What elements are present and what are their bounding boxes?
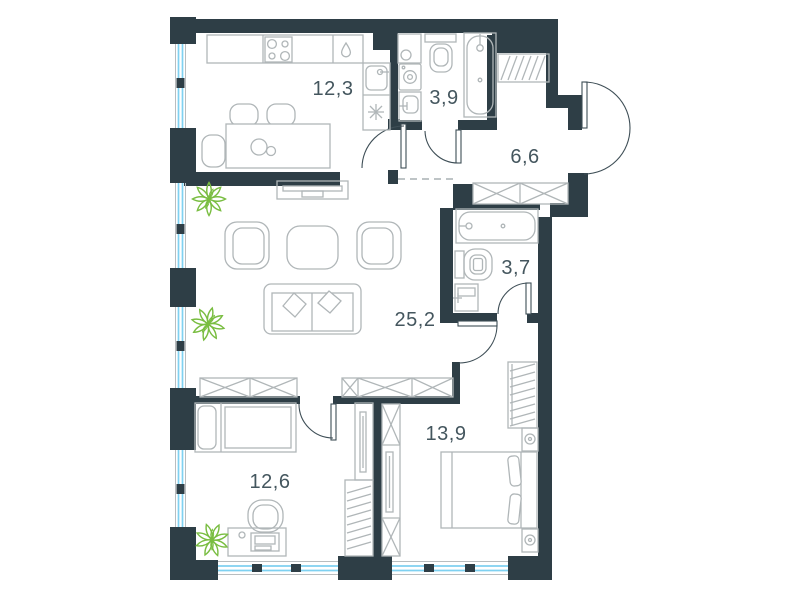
room-area-label-kitchen: 12,3 (313, 78, 354, 100)
entrance-door (582, 82, 630, 174)
double-bed (441, 452, 537, 528)
pillow (283, 293, 306, 317)
floor-plan-canvas: 12,3 3,9 6,6 3,7 25,2 12,6 13,9 (0, 0, 800, 600)
hanger-wardrobe-left-bedroom (345, 480, 373, 556)
plant-icon (188, 304, 228, 344)
kitchen-furniture (202, 35, 390, 168)
nightstand-top (522, 428, 538, 451)
bathroom-sink-icon (399, 92, 421, 121)
toilet-icon (425, 34, 456, 72)
living-room-furniture (200, 181, 453, 397)
living-wardrobe-right (342, 378, 453, 397)
plant-icon (193, 183, 226, 216)
single-bed (195, 403, 296, 452)
armchair-right (357, 222, 401, 269)
bathroom-right-door (498, 283, 531, 314)
window-bottom-1 (218, 562, 338, 575)
sofa (264, 284, 361, 334)
window-left-1 (176, 44, 186, 128)
living-wardrobe-left (200, 378, 297, 397)
kitchen-sink-icon (366, 66, 389, 90)
window-left-4 (176, 450, 186, 527)
room-area-label-bathroom-right: 3,7 (501, 257, 530, 279)
toilet-2-icon (455, 249, 492, 280)
stove-icon (265, 37, 292, 62)
hanger-wardrobe-right-bedroom (508, 362, 537, 428)
pillow (318, 291, 341, 313)
room-area-label-bedroom-left: 12,6 (250, 471, 291, 493)
asterisk-icon (368, 104, 384, 120)
bathroom-top-door (425, 130, 461, 163)
dining-table (202, 104, 330, 168)
room-area-label-bathroom-top: 3,9 (429, 87, 458, 109)
room-area-label-bedroom-right: 13,9 (426, 423, 467, 445)
bedroom-right-door (458, 321, 497, 363)
coat-rail-icon (498, 54, 549, 82)
nightstand-bottom (522, 529, 538, 552)
bathtub-2-icon (456, 209, 538, 243)
tv-cabinet-left-bedroom (355, 403, 373, 480)
washing-machine-icon (399, 64, 421, 90)
bathroom-counter (398, 34, 421, 63)
bedroom-left-door (299, 404, 336, 440)
bathroom-sink-2-icon (453, 284, 478, 311)
armchair-left (225, 222, 269, 269)
window-left-2 (176, 183, 186, 268)
room-area-label-living-room: 25,2 (395, 309, 436, 331)
desk (228, 528, 286, 556)
plant-icon (191, 519, 233, 561)
bedroom-right-wardrobe-column (382, 404, 400, 556)
desk-chair (248, 500, 283, 532)
hallway-closet-icon (473, 183, 568, 204)
kitchen-counter (207, 35, 363, 63)
water-drop-icon (342, 43, 351, 57)
room-area-label-hallway: 6,6 (510, 146, 539, 168)
plants (188, 183, 233, 562)
floor-plan-page: 12,3 3,9 6,6 3,7 25,2 12,6 13,9 (0, 0, 800, 600)
coffee-table (287, 226, 338, 269)
window-bottom-2 (392, 562, 508, 575)
walls (170, 17, 588, 580)
window-left-3 (176, 307, 186, 388)
